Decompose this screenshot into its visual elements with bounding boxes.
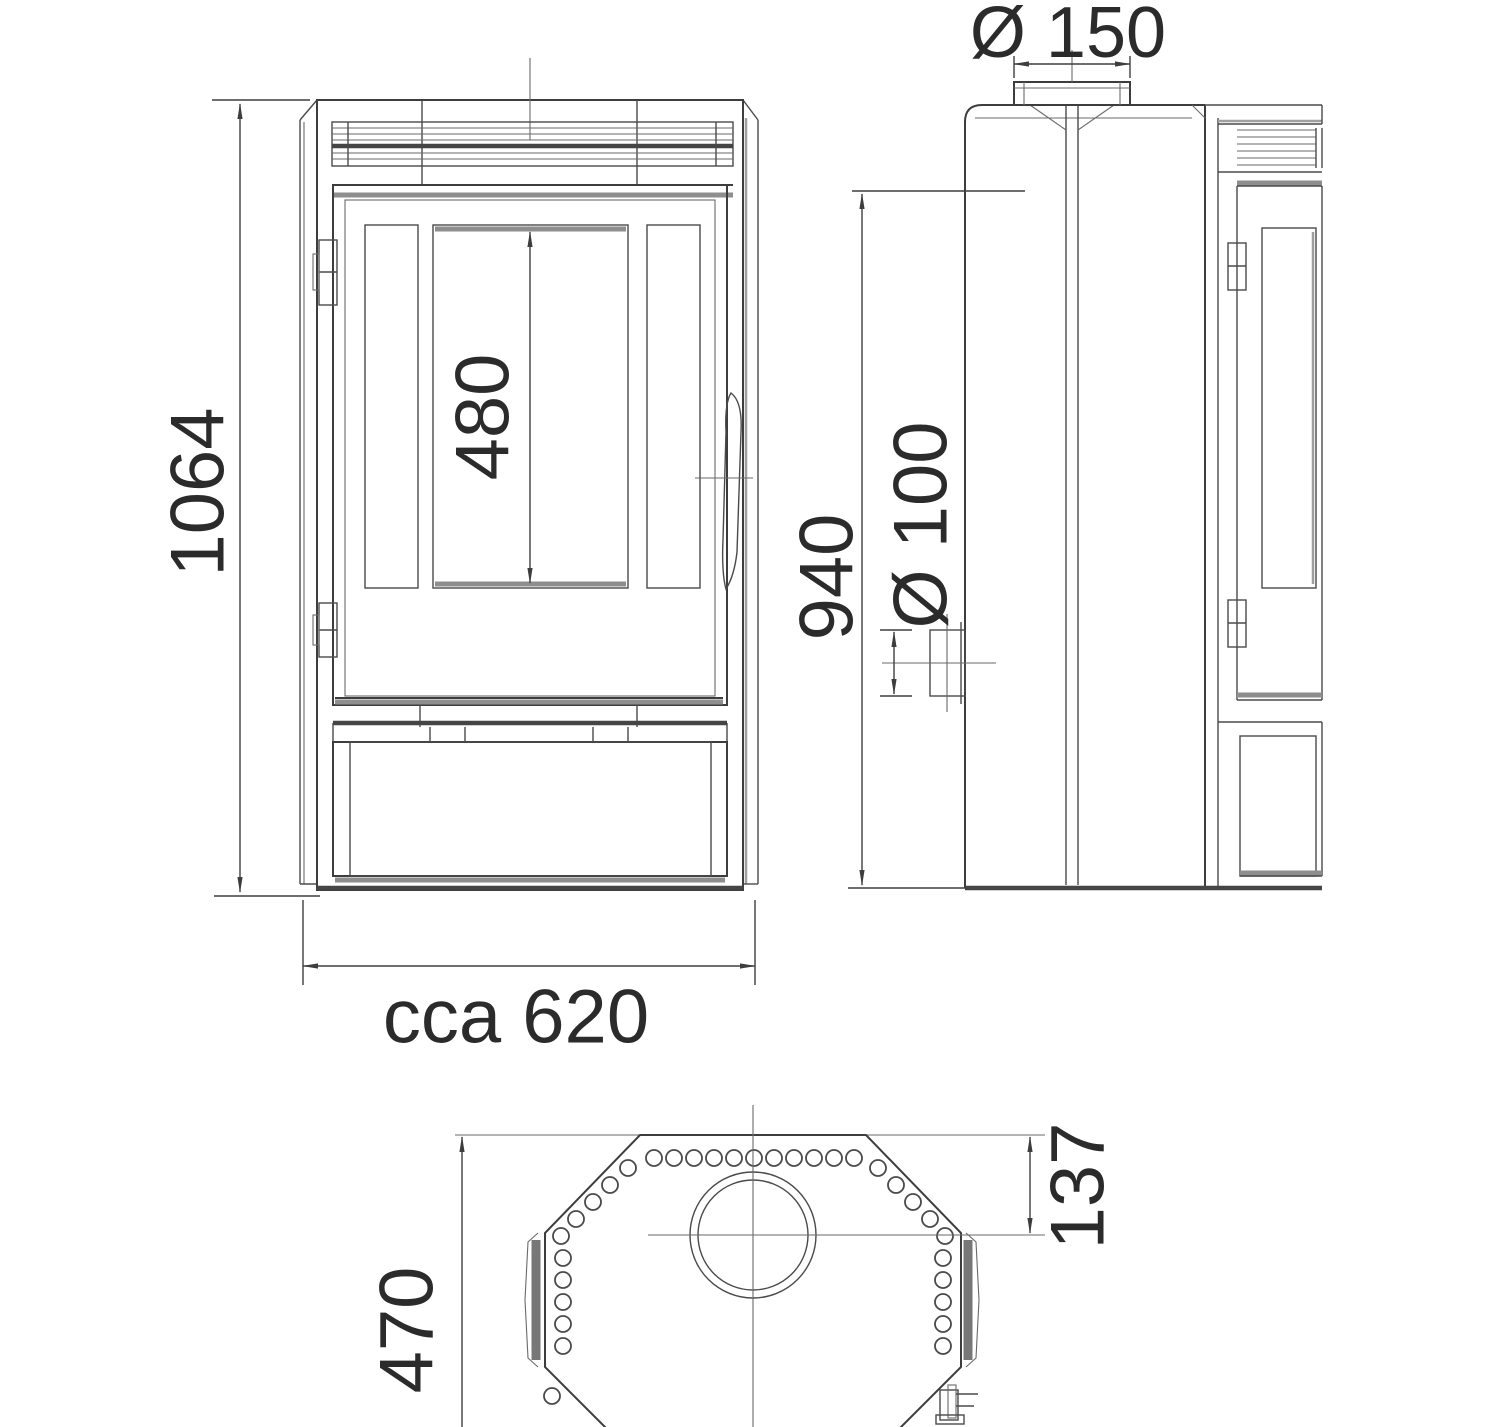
dim-flue-offset: 137 xyxy=(1030,1123,1121,1250)
top-view: 470 137 xyxy=(365,1105,1121,1427)
dim-label-rear-outlet-height: 940 xyxy=(785,514,870,641)
top-right-trim xyxy=(966,1233,979,1367)
door-glass-right xyxy=(647,225,700,588)
front-left-chamfer xyxy=(300,100,317,120)
air-inlet-stub: Ø 100 xyxy=(879,421,996,712)
side-front-section xyxy=(1205,105,1322,876)
door-glass-left xyxy=(365,225,418,588)
ash-drawer xyxy=(317,742,743,888)
dim-label-glass-height: 480 xyxy=(441,354,526,481)
front-top-grille xyxy=(332,122,733,166)
stove-dimension-drawing: 1064 480 cca 620 xyxy=(0,0,1500,1427)
dim-overall-width: cca 620 xyxy=(303,900,755,1060)
front-view: 1064 480 cca 620 xyxy=(156,58,758,1060)
top-latch-detail xyxy=(936,1385,978,1424)
side-glass-strip xyxy=(1262,228,1316,588)
side-view: Ø 150 940 Ø 100 xyxy=(785,0,1322,888)
dim-label-overall-height: 1064 xyxy=(156,407,241,576)
dim-label-depth: 470 xyxy=(365,1267,450,1394)
dim-depth: 470 xyxy=(365,1137,462,1427)
dim-glass-height: 480 xyxy=(441,232,530,583)
dim-label-flue-diameter: Ø 150 xyxy=(970,0,1166,73)
dim-label-overall-width: cca 620 xyxy=(383,975,649,1060)
dim-label-air-inlet-diameter: Ø 100 xyxy=(879,421,964,628)
dim-overall-height: 1064 xyxy=(156,100,320,896)
dim-label-flue-offset: 137 xyxy=(1036,1123,1121,1250)
side-body-outline xyxy=(965,105,1205,888)
side-drawer xyxy=(1240,736,1316,876)
door-handle xyxy=(695,393,753,589)
dim-flue-diameter: Ø 150 xyxy=(970,0,1166,78)
technical-drawing-page: 1064 480 cca 620 xyxy=(0,0,1500,1427)
top-vent-holes xyxy=(544,1150,953,1404)
front-right-chamfer xyxy=(743,100,758,120)
top-left-trim xyxy=(525,1233,538,1367)
